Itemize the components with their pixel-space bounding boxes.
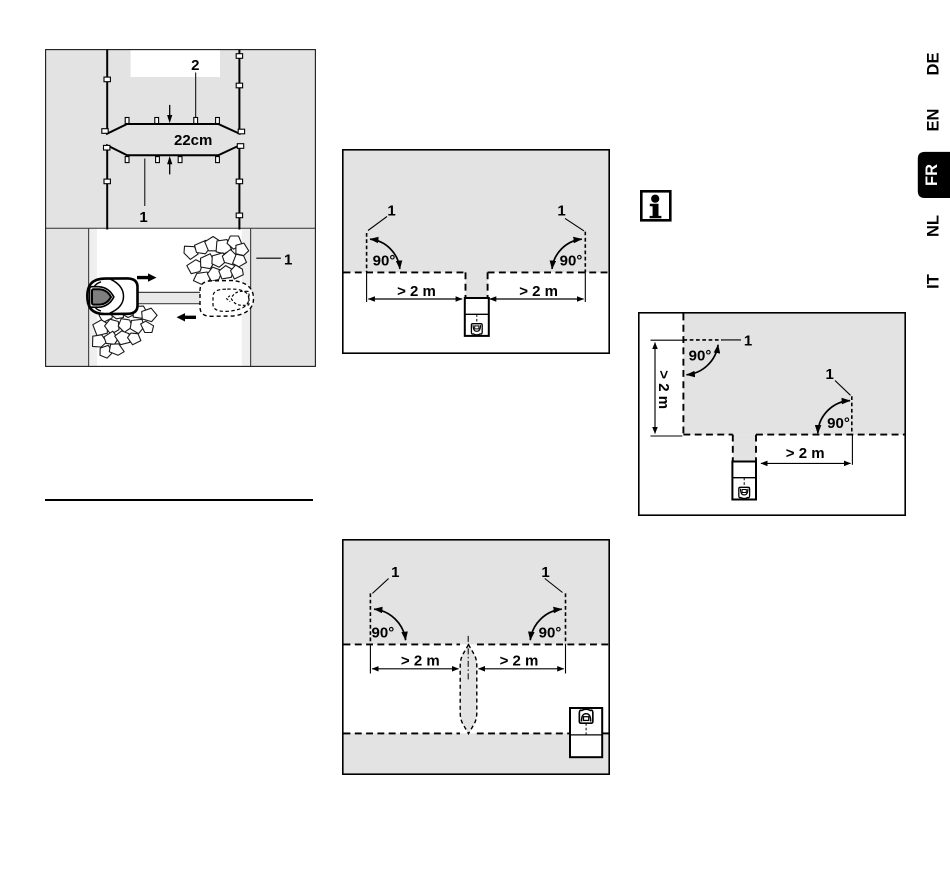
svg-text:1: 1 [284, 252, 292, 269]
svg-text:1: 1 [139, 209, 147, 226]
svg-text:2: 2 [191, 57, 199, 74]
svg-text:1: 1 [744, 333, 752, 350]
svg-text:1: 1 [391, 564, 399, 581]
svg-text:NL: NL [924, 215, 942, 237]
svg-text:1: 1 [557, 203, 565, 220]
svg-text:FR: FR [923, 164, 941, 186]
svg-text:> 2 m: > 2 m [500, 653, 539, 670]
svg-text:IT: IT [924, 274, 942, 289]
svg-text:1: 1 [826, 366, 834, 383]
svg-text:90°: 90° [539, 625, 562, 642]
svg-text:90°: 90° [689, 348, 712, 365]
svg-text:> 2 m: > 2 m [786, 445, 825, 462]
svg-text:DE: DE [924, 53, 942, 76]
svg-text:90°: 90° [372, 625, 395, 642]
svg-text:22cm: 22cm [174, 132, 212, 149]
svg-text:> 2 m: > 2 m [401, 653, 440, 670]
svg-text:90°: 90° [827, 415, 850, 432]
svg-text:> 2 m: > 2 m [655, 370, 672, 409]
svg-text:90°: 90° [560, 253, 583, 270]
svg-text:> 2 m: > 2 m [519, 283, 558, 300]
svg-text:EN: EN [924, 109, 942, 132]
svg-text:90°: 90° [373, 253, 396, 270]
svg-text:> 2 m: > 2 m [397, 283, 436, 300]
svg-text:1: 1 [387, 203, 395, 220]
